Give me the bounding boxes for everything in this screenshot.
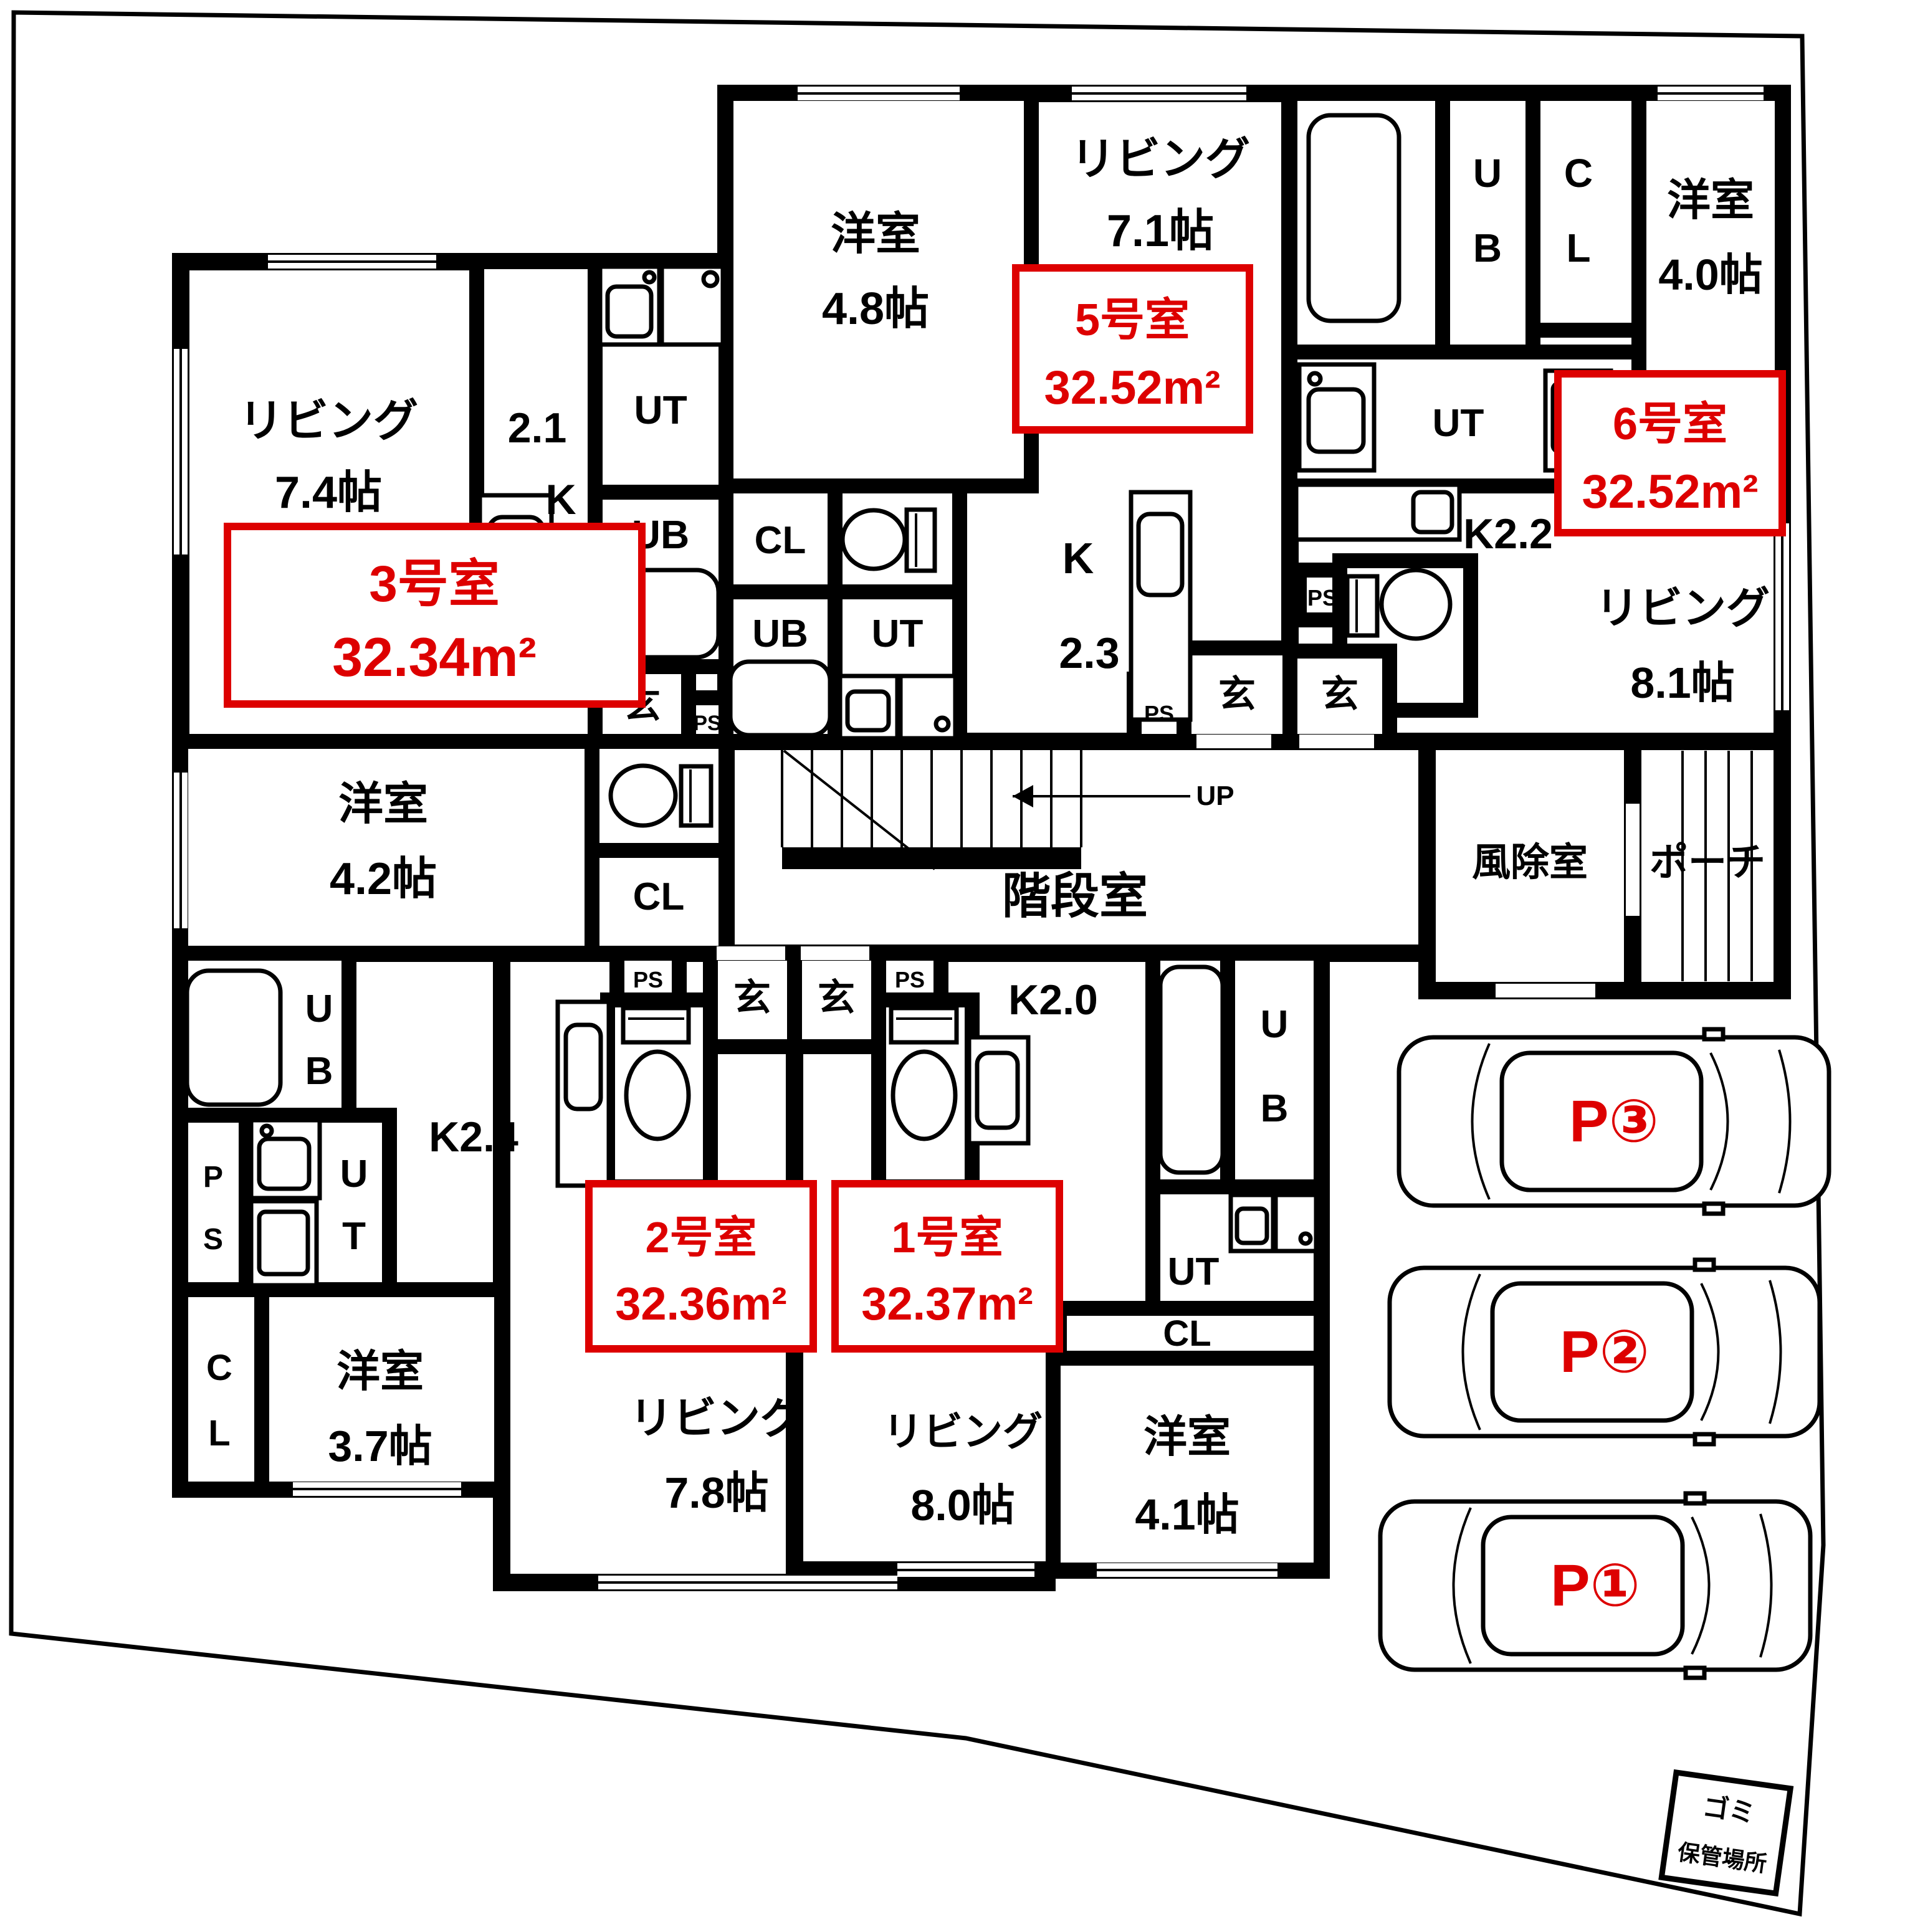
u5-genkan-label: 玄 <box>1218 673 1256 715</box>
u2-living-size: 7.8帖 <box>664 1468 768 1517</box>
u2-ps-label-p: P <box>203 1161 223 1194</box>
u2-cl-label-c: C <box>206 1348 232 1388</box>
room-u6-ub <box>1443 93 1533 352</box>
u3-kitchen-label: K <box>545 476 576 523</box>
u6-bathtub-icon <box>1309 115 1399 321</box>
u1-bedroom-size: 4.1帖 <box>1135 1490 1239 1539</box>
porch-label: ポーチ <box>1650 841 1765 884</box>
u1-ut-label: UT <box>1168 1250 1220 1293</box>
u2-ub-label-u: U <box>305 987 333 1030</box>
u1-washbasin-icon <box>1231 1195 1273 1251</box>
u2-ub-label-b: B <box>305 1050 333 1093</box>
u5-ut-label: UT <box>872 612 924 655</box>
u3-ut-label: UT <box>634 388 687 432</box>
u6-cl-label-l: L <box>1566 226 1590 270</box>
u3-cl-label: CL <box>633 875 685 918</box>
u2-id-label: 2号室 <box>646 1213 757 1262</box>
u5-bedroom-label: 洋室 <box>831 209 920 259</box>
u1-washer-icon <box>1276 1195 1316 1251</box>
u6-living-size: 8.1帖 <box>1630 659 1734 707</box>
u3-washbasin-icon <box>600 267 659 345</box>
u1-bedroom-label: 洋室 <box>1143 1412 1231 1461</box>
up-label: UP <box>1196 781 1234 811</box>
u2-ps2-label: PS <box>633 967 663 992</box>
u1-id-label: 1号室 <box>892 1213 1003 1262</box>
u3-bedroom-size: 4.2帖 <box>330 854 437 904</box>
u6-ub-label-b: B <box>1473 226 1502 270</box>
u2-bedroom-size: 3.7帖 <box>328 1422 432 1470</box>
u6-area-label: 32.52m² <box>1582 465 1758 518</box>
u2-ut-label-u: U <box>340 1153 368 1196</box>
u3-toilet-icon <box>611 766 711 826</box>
u1-bathtub-icon <box>1160 967 1223 1173</box>
u1-ub-label-b: B <box>1261 1087 1289 1130</box>
u2-kitchen-sink-icon <box>558 1002 609 1186</box>
u5-kitchen-label: K <box>1062 534 1094 583</box>
u6-bedroom-size: 4.0帖 <box>1658 250 1762 299</box>
u3-living-label: リビング <box>239 396 418 446</box>
u5-bedroom-size: 4.8帖 <box>822 284 929 334</box>
parking-p1-label: P① <box>1550 1553 1640 1619</box>
u5-ps-label: PS <box>1144 701 1174 726</box>
u5-ub-label: UB <box>752 612 808 655</box>
u2-washbasin-icon <box>251 1120 320 1198</box>
room-u6-cl <box>1533 93 1639 330</box>
u5-washbasin-icon <box>840 676 897 738</box>
u5-area-label: 32.52m² <box>1044 361 1220 414</box>
stairwell-label: 階段室 <box>1002 868 1148 923</box>
u6-living-label: リビング <box>1595 584 1770 632</box>
u6-cl-label-c: C <box>1564 151 1593 196</box>
u2-washer-icon <box>251 1201 317 1285</box>
u2-living-label: リビング <box>629 1394 804 1442</box>
u1-ps-label: PS <box>895 967 925 992</box>
u1-cl-label: CL <box>1163 1313 1211 1354</box>
u6-id-box: 6号室 32.52m² <box>1558 374 1782 533</box>
u5-bathtub-icon <box>730 662 830 735</box>
parking-p2-label: P② <box>1560 1319 1650 1385</box>
u5-toilet-icon <box>843 510 935 571</box>
u3-living-size: 7.4帖 <box>275 468 382 518</box>
u1-area-label: 32.37m² <box>861 1278 1033 1330</box>
u2-kitchen-label: K2.4 <box>429 1113 518 1161</box>
windbreak-label: 風除室 <box>1472 841 1588 884</box>
u3-area-label: 32.34m² <box>332 626 537 688</box>
u3-id-box: 3号室 32.34m² <box>227 526 642 704</box>
u6-ub-label-u: U <box>1473 151 1502 196</box>
u2-toilet-icon <box>623 1008 689 1139</box>
u2-id-box: 2号室 32.36m² <box>589 1184 813 1349</box>
u5-cl-label: CL <box>755 519 806 562</box>
u5-living-size: 7.1帖 <box>1107 206 1214 256</box>
u2-ps-label-s: S <box>203 1223 223 1256</box>
u1-id-box: 1号室 32.37m² <box>835 1184 1059 1349</box>
u3-ps-label: PS <box>693 711 721 735</box>
u1-genkan-label: 玄 <box>818 977 855 1019</box>
u6-washbasin-icon <box>1299 364 1374 470</box>
u6-kitchen-counter-icon <box>1296 485 1459 540</box>
u6-ps-label: PS <box>1307 585 1337 611</box>
room-u3-bedroom <box>181 741 592 953</box>
u5-kitchen-size: 2.3 <box>1059 629 1119 677</box>
u2-bedroom-label: 洋室 <box>337 1347 424 1396</box>
u6-toilet-icon <box>1347 570 1450 639</box>
u1-living-size: 8.0帖 <box>910 1481 1015 1530</box>
parking-p3-label: P③ <box>1569 1088 1659 1154</box>
room-u1-ub <box>1228 953 1321 1187</box>
u5-id-label: 5号室 <box>1075 295 1190 345</box>
u2-area-label: 32.36m² <box>615 1278 787 1330</box>
u2-bathtub-icon <box>187 971 280 1105</box>
u3-id-label: 3号室 <box>369 556 500 612</box>
u1-kitchen-label: K2.0 <box>1008 976 1098 1024</box>
u5-kitchen-counter-icon <box>1131 492 1190 720</box>
room-u2-cl <box>181 1290 262 1489</box>
u1-ub-label-u: U <box>1261 1003 1289 1046</box>
u5-living-label: リビング <box>1071 135 1250 184</box>
room-u2-ps <box>181 1115 246 1290</box>
u1-living-label: リビング <box>883 1409 1043 1454</box>
u6-ut-label: UT <box>1433 402 1484 445</box>
u2-genkan-label: 玄 <box>733 977 771 1019</box>
u5-id-box: 5号室 32.52m² <box>1016 268 1249 430</box>
u6-kitchen-label: K2.2 <box>1463 510 1553 558</box>
u1-toilet-icon <box>891 1008 957 1139</box>
u2-cl-label-l: L <box>208 1413 230 1454</box>
u6-id-label: 6号室 <box>1613 399 1727 449</box>
garbage-storage: ゴミ 保管場所 <box>1661 1773 1790 1893</box>
u6-bedroom-label: 洋室 <box>1667 176 1754 224</box>
u3-kitchen-size: 2.1 <box>508 404 567 452</box>
u6-genkan-label: 玄 <box>1321 673 1358 715</box>
u3-washer-icon <box>662 267 723 345</box>
u1-kitchen-sink-icon <box>969 1037 1028 1143</box>
u2-ut-label-t: T <box>342 1215 366 1258</box>
u3-bedroom-label: 洋室 <box>338 779 428 829</box>
u5-washer-icon <box>900 676 955 738</box>
floor-plan-svg: リビング 7.4帖 2.1 K UT UB 玄 PS 洋室 4.2帖 CL 洋室… <box>0 0 1905 1932</box>
floor-plan: リビング 7.4帖 2.1 K UT UB 玄 PS 洋室 4.2帖 CL 洋室… <box>0 0 1905 1932</box>
